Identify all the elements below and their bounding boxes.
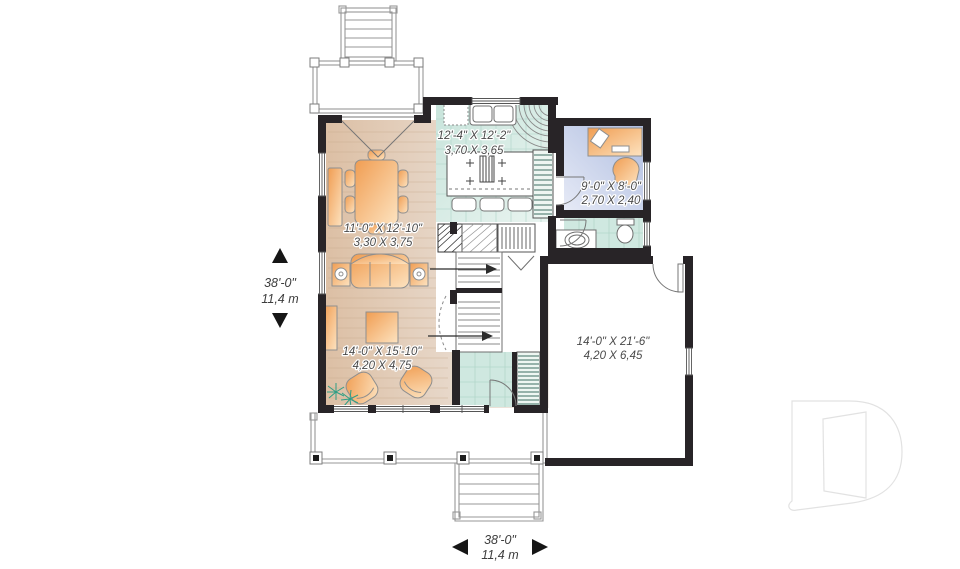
dining-table — [355, 160, 398, 224]
dining-dimensions-metric: 3,30 X 3,75 — [354, 237, 413, 249]
garage-dimensions-imperial: 14'-0" X 21'-6" — [577, 336, 651, 348]
porch-posts — [310, 452, 543, 464]
dining-chair — [398, 196, 408, 213]
floor-plan-page: 12'-4" X 12'-2" 3,70 X 3,65 9'-0" X 8'-0… — [0, 0, 960, 569]
dishwasher — [444, 103, 468, 125]
dimension-arrow-right-icon — [532, 539, 548, 555]
dimension-arrow-down-icon — [272, 313, 288, 328]
window — [643, 222, 651, 246]
garage-entry-door — [653, 264, 683, 292]
window — [440, 405, 484, 413]
window — [334, 405, 368, 413]
living-dimensions-metric: 4,20 X 4,75 — [353, 360, 412, 372]
deck — [310, 6, 423, 113]
toilet-bowl — [617, 225, 633, 243]
kitchen-dimensions-imperial: 12'-4" X 12'-2" — [438, 130, 512, 142]
window — [376, 405, 430, 413]
lamp — [339, 272, 343, 276]
dining-chair — [398, 170, 408, 187]
kitchen-dimensions-metric: 3,70 X 3,65 — [445, 145, 504, 157]
dining-dimensions-imperial: 11'-0" X 12'-10" — [344, 223, 423, 235]
window — [318, 153, 326, 196]
entry-closet-shelves — [517, 352, 540, 407]
left-dimension: 38'-0" 11,4 m — [261, 248, 298, 328]
bottom-dimension: 38'-0" 11,4 m — [452, 533, 548, 562]
office-dimensions-imperial: 9'-0" X 8'-0" — [581, 181, 642, 193]
coffee-table — [366, 312, 398, 343]
living-dimensions-imperial: 14'-0" X 15'-10" — [342, 346, 422, 358]
window — [685, 348, 693, 375]
stool — [508, 198, 532, 211]
window — [318, 252, 326, 294]
dimension-arrow-left-icon — [452, 539, 468, 555]
toilet-tank — [617, 219, 634, 225]
stool — [452, 198, 476, 211]
bottom-dimension-metric: 11,4 m — [481, 548, 518, 562]
left-dimension-metric: 11,4 m — [261, 292, 298, 306]
pantry-shelves — [533, 150, 553, 218]
dining-chair — [345, 170, 355, 187]
stool — [480, 198, 504, 211]
front-porch — [310, 413, 547, 521]
floor-plan-canvas: 12'-4" X 12'-2" 3,70 X 3,65 9'-0" X 8'-0… — [0, 0, 960, 569]
garage-dimensions-metric: 4,20 X 6,45 — [584, 350, 643, 362]
window — [472, 97, 520, 105]
left-dimension-imperial: 38'-0" — [264, 276, 296, 290]
lamp — [417, 272, 421, 276]
kitchen-island — [447, 152, 533, 211]
window — [643, 162, 651, 200]
watermark-d-logo-icon — [789, 401, 902, 510]
upper-stair-run — [498, 224, 535, 252]
deck-posts — [310, 58, 423, 113]
buffet — [328, 168, 342, 226]
stair-landing-edge — [456, 288, 502, 293]
desk-keyboard — [612, 146, 629, 152]
dining-chair — [345, 196, 355, 213]
bottom-dimension-imperial: 38'-0" — [484, 533, 516, 547]
office-dimensions-metric: 2,70 X 2,40 — [581, 195, 641, 207]
dimension-arrow-up-icon — [272, 248, 288, 263]
foyer-floor — [460, 352, 512, 407]
